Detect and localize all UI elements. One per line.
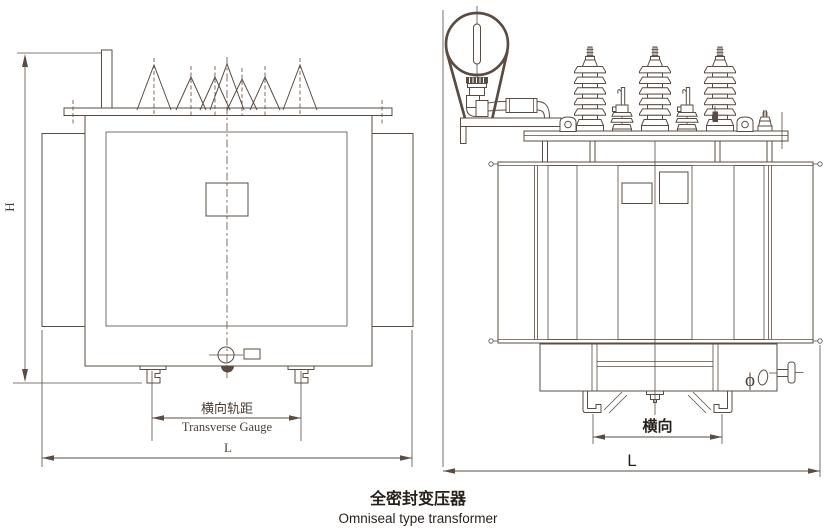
rating-plate-small (244, 349, 260, 359)
gauge-platform (461, 118, 562, 127)
gauge-tube (474, 24, 481, 64)
valve-stem (777, 370, 789, 377)
caption: 全密封变压器 Omniseal type transformer (338, 489, 498, 526)
side-radiator-right (372, 134, 413, 327)
lifting-lug-right (737, 117, 753, 132)
arrow-left-icon (42, 455, 54, 460)
rim-hook (818, 162, 822, 166)
lifting-lug-left (560, 117, 576, 132)
rim-hook (489, 162, 493, 166)
roller-foot-left (140, 366, 166, 383)
hv-bushing-2 (640, 47, 671, 131)
hv-bushing-1 (575, 47, 606, 131)
base-foot-left (583, 391, 601, 413)
side-radiator-left (42, 134, 85, 327)
nameplate-large (660, 172, 689, 204)
bottom-plug (221, 366, 234, 373)
caption-title-zh: 全密封变压器 (369, 489, 467, 508)
lv-bushing-1 (611, 88, 633, 132)
corrugated-tank (489, 162, 822, 343)
transformer-drawing-page: H (0, 0, 837, 532)
side-gauge-dimension: 横向 (593, 414, 722, 444)
lid-post (102, 50, 113, 108)
lid-supports (543, 141, 773, 162)
arrow-left-icon (443, 468, 455, 473)
aux-bushing (758, 111, 772, 131)
arrester-indicator (713, 112, 719, 123)
arrow-left-icon (152, 415, 164, 420)
rim-hook (818, 339, 822, 343)
arrow-up-icon (22, 54, 28, 67)
expansion-cylinder (506, 99, 537, 113)
valve-symbol: ϕ (745, 370, 755, 391)
platform-support (461, 127, 467, 144)
lv-bushing-2 (676, 88, 698, 132)
height-dim-label: H (2, 202, 17, 211)
technical-drawing: H (0, 0, 837, 532)
nameplate-small (622, 183, 652, 204)
tank-lid (64, 108, 392, 116)
base-foot-right (714, 391, 732, 413)
side-gauge-label: 横向 (642, 417, 672, 435)
caption-title-en: Omniseal type transformer (338, 511, 498, 526)
front-gauge-dimension: 横向轨距 Transverse Gauge (152, 371, 301, 441)
valve-handle (788, 362, 795, 383)
side-view: ϕ 横向 (443, 6, 822, 477)
arrow-right-icon (400, 455, 412, 460)
arrow-right-icon (289, 415, 301, 420)
hv-bushing-3 (705, 47, 736, 131)
length-dim-label: L (224, 440, 232, 455)
base-frame: ϕ (540, 344, 804, 403)
front-view: H (2, 50, 413, 467)
arrow-right-icon (808, 468, 820, 473)
tank-body (85, 116, 372, 367)
arrow-down-icon (22, 369, 28, 382)
arrow-right-icon (710, 434, 722, 439)
tank-lid-side (524, 131, 788, 141)
arrow-left-icon (593, 434, 605, 439)
gauge-label-zh: 横向轨距 (201, 401, 253, 416)
side-length-label: L (627, 451, 636, 470)
gauge-body (470, 88, 485, 96)
gauge-label-en: Transverse Gauge (182, 420, 273, 434)
rim-hook (489, 339, 493, 343)
